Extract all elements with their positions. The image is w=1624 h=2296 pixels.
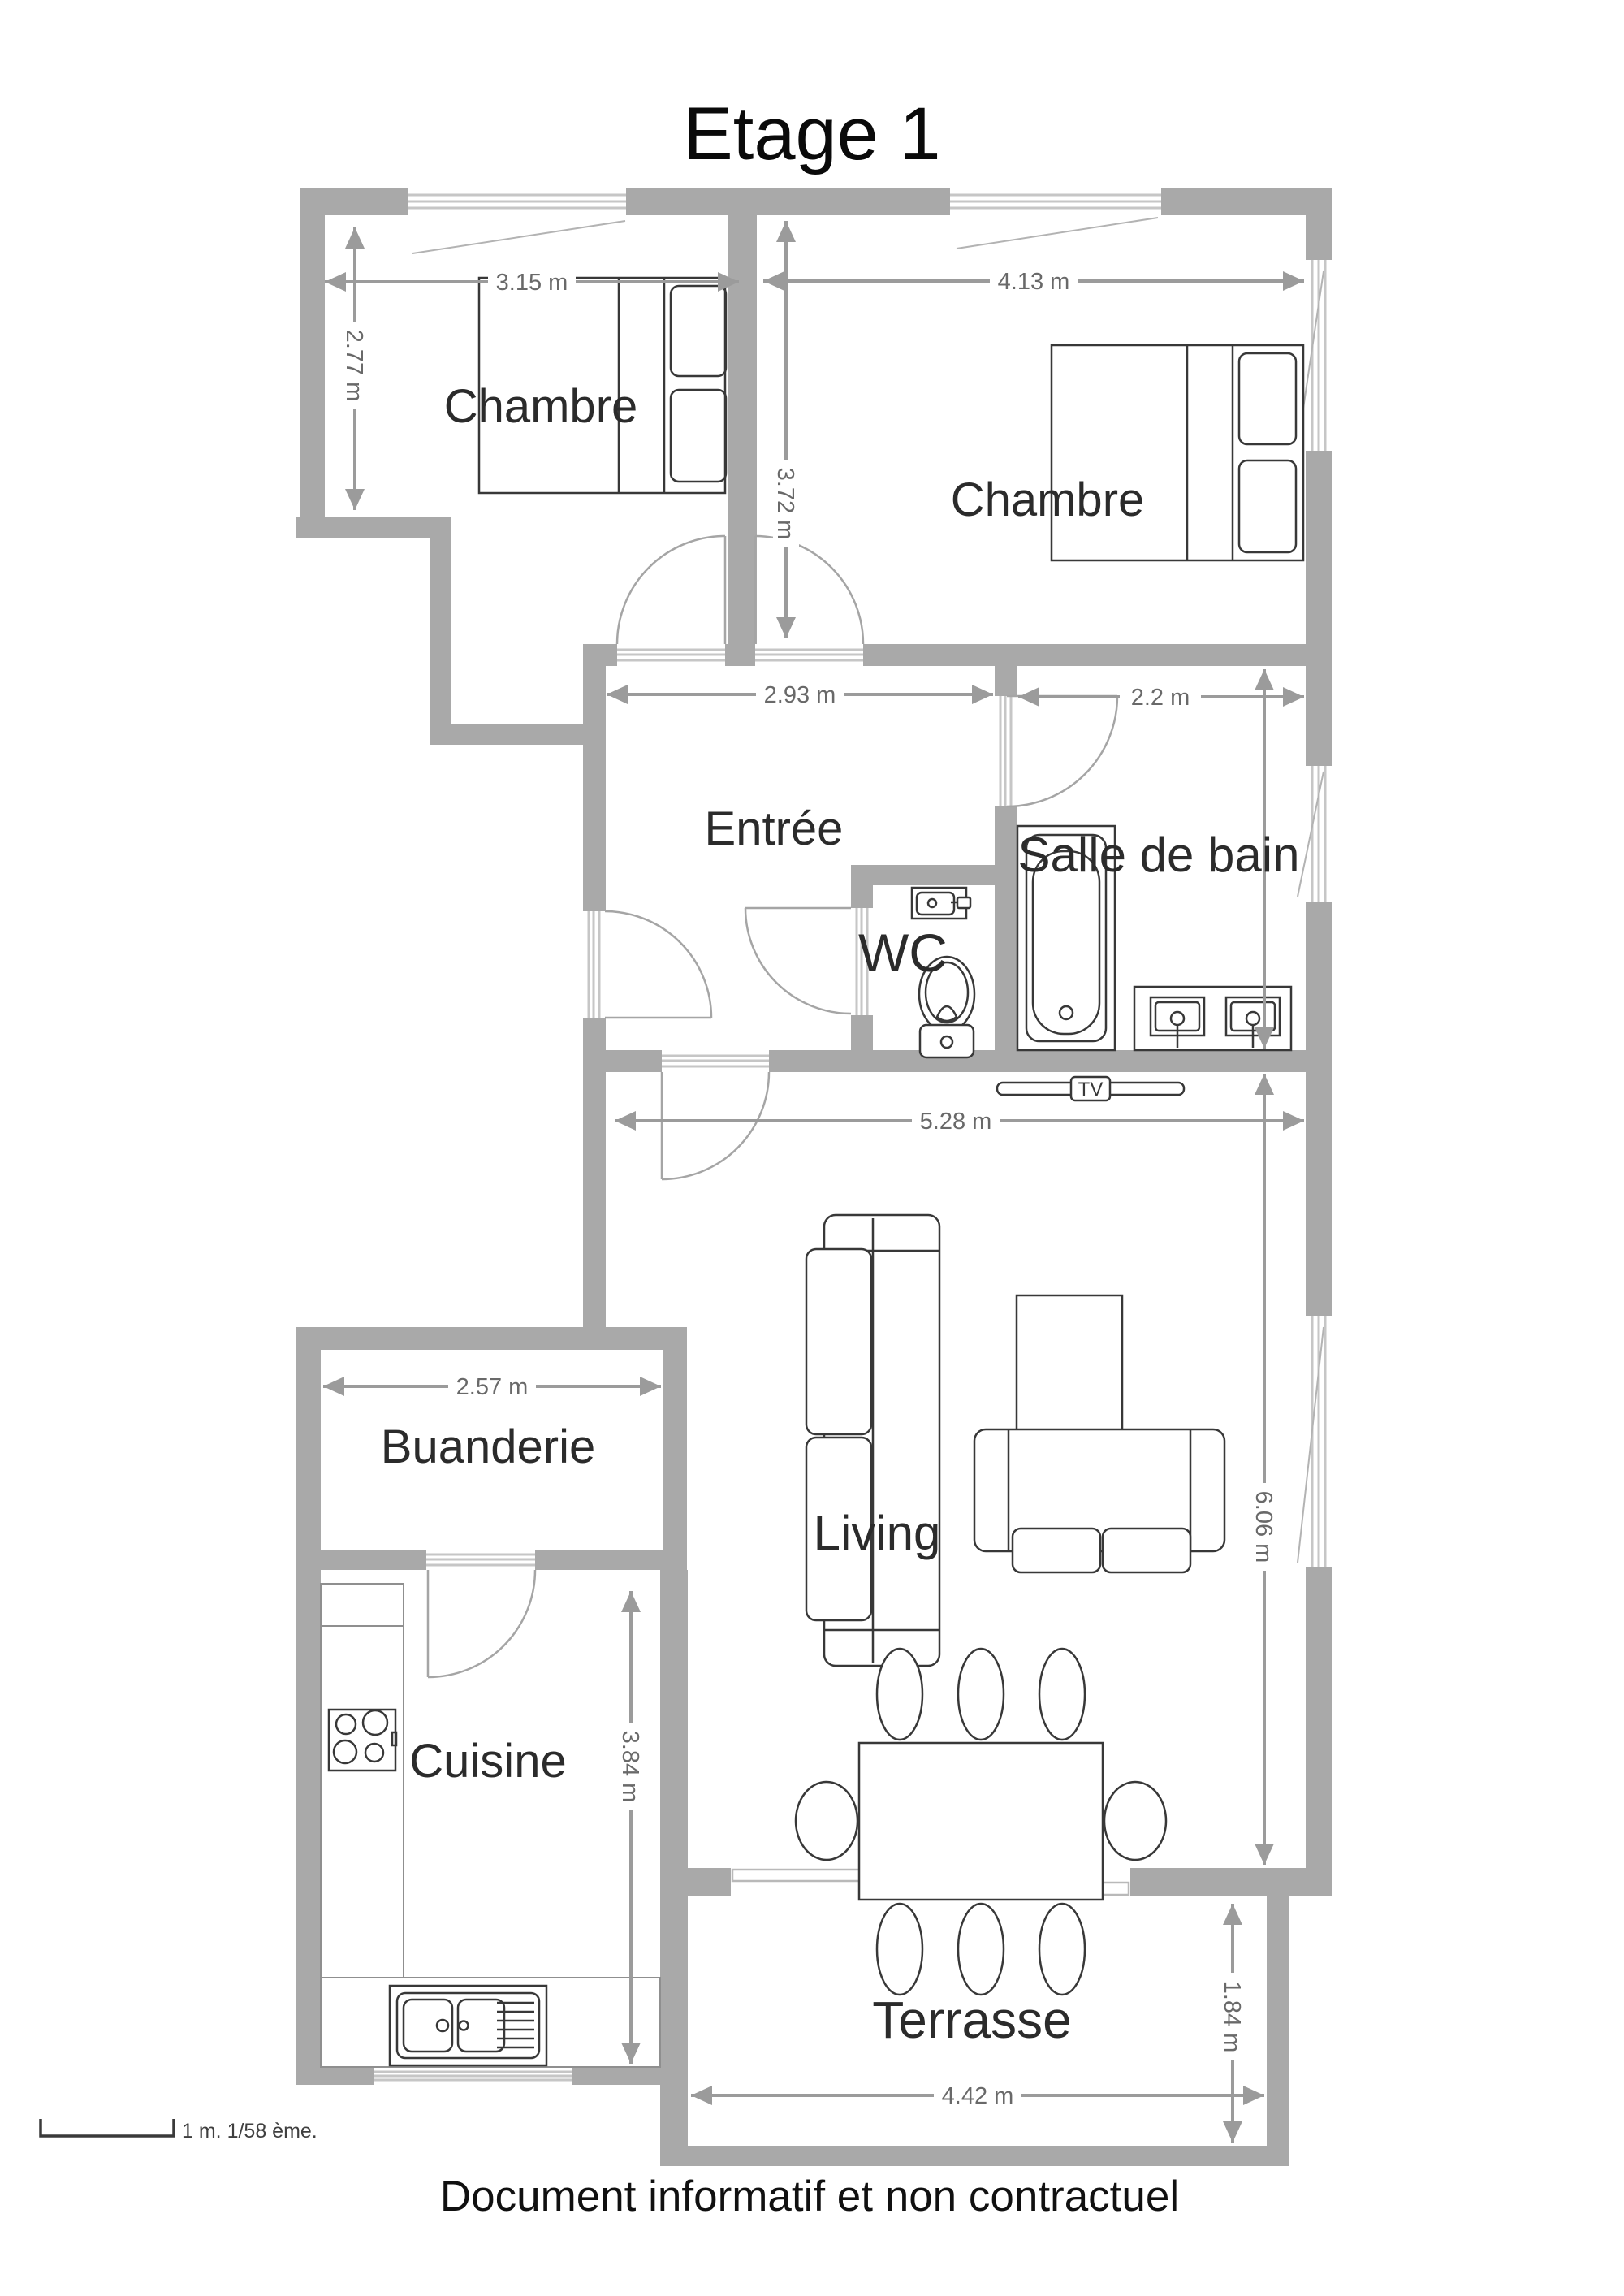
svg-text:2.57 m: 2.57 m: [456, 1374, 529, 1400]
svg-text:4.13 m: 4.13 m: [998, 269, 1070, 295]
dim-terrasse-width: 4.42 m: [691, 2082, 1264, 2109]
dining-chair: [877, 1649, 922, 1740]
door-opening-bedroom1: [617, 644, 725, 666]
door-arc-bath: [1007, 696, 1117, 806]
dim-buanderie-width: 2.57 m: [323, 1373, 661, 1400]
dining-table: [859, 1743, 1103, 1900]
scale-note: 1 m. 1/58 ème.: [182, 2120, 317, 2143]
room-label-terrasse: Terrasse: [872, 1991, 1071, 2049]
room-label-cuisine: Cuisine: [409, 1735, 566, 1788]
window-bedroom2-right: [1306, 260, 1332, 451]
kitchen-sink: [390, 1986, 546, 2065]
dining-chair: [1039, 1649, 1085, 1740]
wall-step-horizontal: [430, 724, 605, 745]
floorplan-drawing: TV: [0, 0, 1624, 2296]
svg-text:3.15 m: 3.15 m: [496, 270, 568, 296]
room-label-buanderie: Buanderie: [381, 1420, 595, 1473]
door-opening-front: [583, 911, 606, 1018]
svg-text:2.93 m: 2.93 m: [764, 682, 836, 708]
window-living-right: [1306, 1316, 1332, 1567]
svg-text:6.06 m: 6.06 m: [1250, 1491, 1276, 1563]
svg-text:5.28 m: 5.28 m: [920, 1109, 992, 1135]
stove: [329, 1710, 396, 1771]
svg-text:4.42 m: 4.42 m: [942, 2083, 1014, 2109]
tv-label: TV: [1078, 1079, 1104, 1100]
door-arc-bedroom1: [617, 536, 725, 644]
door-opening-buanderie-cuisine: [426, 1550, 535, 1570]
room-label-wc: WC: [858, 923, 948, 983]
door-opening-bedroom2: [755, 644, 863, 666]
svg-text:2.2 m: 2.2 m: [1131, 685, 1190, 711]
dining-chair: [796, 1782, 857, 1860]
floorplan-page: TV: [0, 0, 1624, 2296]
window-bedroom2-top: [950, 188, 1161, 215]
dining-chair: [1104, 1782, 1166, 1860]
dim-living-height: 6.06 m: [1250, 1074, 1277, 1865]
wall-bedroom1-bottom: [296, 517, 451, 538]
dim-entree-width: 2.93 m: [607, 681, 993, 708]
dining-chair: [877, 1904, 922, 1995]
wc-basin: [912, 888, 970, 919]
footer-note: Document informatif et non contractuel: [440, 2173, 1179, 2220]
wall-kitchen-left: [296, 1327, 321, 2085]
room-label-living: Living: [814, 1506, 941, 1560]
tv: TV: [997, 1077, 1184, 1100]
svg-text:3.84 m: 3.84 m: [617, 1731, 643, 1803]
room-label-chambre2: Chambre: [951, 473, 1145, 526]
page-title: Etage 1: [683, 93, 940, 175]
scale-bar: 1 m. 1/58 ème.: [41, 2119, 317, 2143]
sofa-vertical: [806, 1215, 939, 1666]
door-opening-living: [662, 1050, 769, 1072]
wall-buanderie-top: [297, 1327, 687, 1350]
svg-text:3.72 m: 3.72 m: [772, 468, 798, 540]
door-arc-wc: [745, 908, 851, 1014]
wall-bedroom-partition: [728, 188, 757, 644]
double-bed-2: [1052, 345, 1303, 560]
window-bath-right: [1306, 766, 1332, 902]
dim-living-width: 5.28 m: [615, 1108, 1304, 1135]
wall-terrasse-right: [1267, 1896, 1289, 2166]
svg-text:1.84 m: 1.84 m: [1219, 1981, 1245, 2053]
door-arc-front-door: [605, 911, 711, 1018]
svg-text:2.77 m: 2.77 m: [341, 330, 367, 402]
window-kitchen-bottom: [374, 2067, 572, 2085]
door-arc-cuisine: [428, 1570, 535, 1677]
furniture: TV: [321, 278, 1303, 2067]
room-label-chambre1: Chambre: [444, 380, 638, 433]
dining-chair: [958, 1649, 1004, 1740]
dining-chair: [958, 1904, 1004, 1995]
dining-chair: [1039, 1904, 1085, 1995]
dim-chambre1-height: 2.77 m: [341, 227, 368, 510]
sofa-horizontal: [974, 1429, 1224, 1572]
dim-terrasse-height: 1.84 m: [1219, 1904, 1246, 2143]
door-opening-bath: [995, 696, 1017, 806]
window-bedroom1-top: [408, 188, 626, 215]
room-label-salle-de-bain: Salle de bain: [1018, 828, 1300, 882]
wall-wc-top: [851, 865, 1017, 885]
room-label-entree: Entrée: [705, 802, 844, 855]
wall-step-vertical: [430, 538, 451, 745]
wall-buanderie-right: [663, 1327, 687, 1570]
wall-terrasse-bottom: [660, 2146, 1289, 2166]
door-arc-bedroom2: [755, 536, 863, 644]
dim-chambre2-width: 4.13 m: [763, 268, 1304, 295]
wall-bedroom1-left: [300, 188, 325, 538]
door-arc-living: [662, 1072, 769, 1179]
